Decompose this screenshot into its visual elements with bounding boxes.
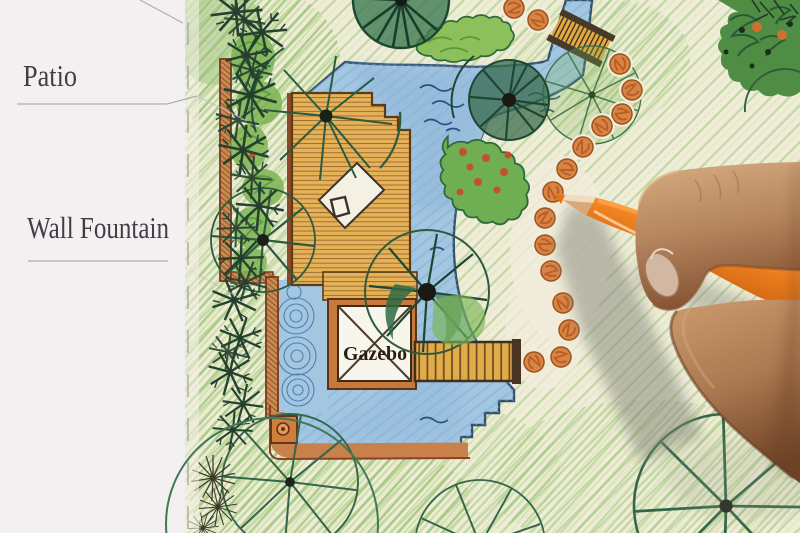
- svg-text:Wall Fountain: Wall Fountain: [27, 210, 169, 245]
- svg-text:Patio: Patio: [23, 58, 77, 93]
